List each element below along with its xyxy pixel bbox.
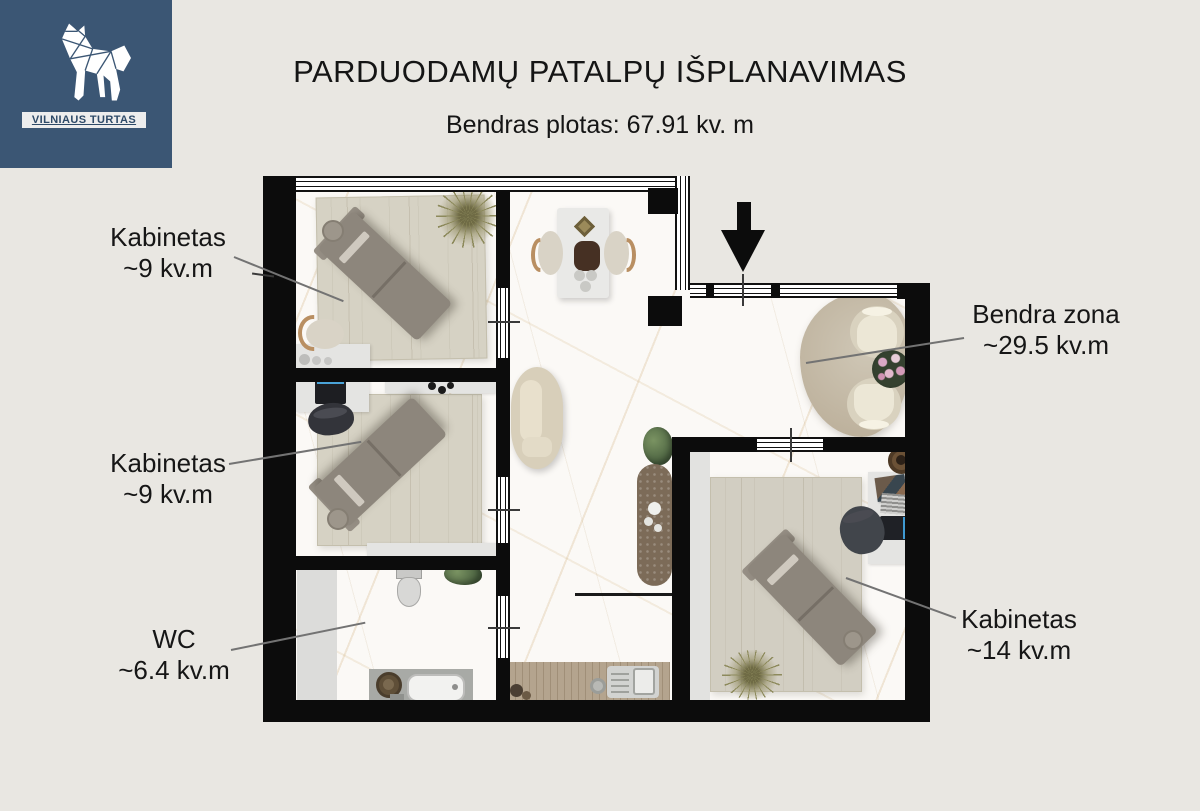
stool [322,220,344,242]
wall-interior [496,358,510,477]
sink-basin [633,668,655,695]
door-tick [790,428,792,462]
plant-icon [722,650,782,700]
chair-seat [604,231,629,275]
table-tray [574,241,600,271]
plant-icon [436,184,500,248]
room-area: ~29.5 kv.m [941,330,1151,361]
wall-interior [672,437,690,700]
wall-interior [496,190,510,288]
room-name: Kabinetas [63,448,273,479]
table-cup [580,281,591,292]
plant-icon [643,427,673,465]
pebble-decor [648,502,661,515]
wall-interior [296,368,496,382]
company-logo: VILNIAUS TURTAS [0,0,172,168]
door [496,288,510,358]
drying-rack [611,671,629,693]
door-tick [742,274,744,306]
pebble-decor [654,524,662,532]
room-label-kabinetas-large: Kabinetas ~14 kv.m [914,604,1124,666]
floor-plan-page: { "header": { "title": "PARDUODAMŲ PATAL… [0,0,1200,811]
decor-dot [428,382,436,390]
sink-bowl [312,356,321,365]
wall-post [706,283,714,298]
room-name: Bendra zona [941,299,1151,330]
wall-post [771,283,780,298]
toilet-bowl [397,577,421,607]
room-label-bendra-zona: Bendra zona ~29.5 kv.m [941,299,1151,361]
wall-bottom [263,700,930,722]
room-area: ~14 kv.m [914,635,1124,666]
page-subtitle: Bendras plotas: 67.91 kv. m [0,111,1200,140]
wall-interior [690,437,757,452]
counter [367,543,496,556]
room-area: ~9 kv.m [63,253,273,284]
entrance-window-wall [690,283,905,298]
plate [522,691,531,700]
round-sink-drain [383,679,394,690]
stool [327,508,349,530]
lounge-chair-foot [522,437,552,457]
room-label-kabinetas-top: Kabinetas ~9 kv.m [63,222,273,284]
page-title: PARDUODAMŲ PATALPŲ IŠPLANAVIMAS [0,54,1200,90]
partition-line [575,593,672,596]
wall-interior [823,437,905,452]
door-tick [488,321,520,323]
room-name: Kabinetas [63,222,273,253]
wolf-icon [36,14,136,112]
chair-seat [538,231,563,275]
wardrobe-strip [690,452,710,700]
room-name: WC [69,624,279,655]
room-area: ~9 kv.m [63,479,273,510]
decor-dot [447,382,454,389]
stool [843,630,863,650]
chair-seat [306,319,344,349]
bathtub-drain [452,684,458,690]
table-cup [574,270,585,281]
wall-interior [496,658,510,706]
window [296,176,680,192]
door-tick [488,509,520,511]
column [648,296,682,326]
wall-interior [296,556,496,570]
entrance-arrow-head-icon [721,230,765,272]
sink-bowl [324,357,332,365]
room-area: ~6.4 kv.m [69,655,279,686]
wall-corner [897,283,930,299]
lounge-chair-cushion [520,380,542,442]
room-label-wc: WC ~6.4 kv.m [69,624,279,686]
door-tick [488,627,520,629]
table-cup [586,270,597,281]
room-label-kabinetas-mid: Kabinetas ~9 kv.m [63,448,273,510]
column [648,188,678,214]
pebble-decor [644,517,653,526]
brand-name: VILNIAUS TURTAS [22,112,146,128]
room-name: Kabinetas [914,604,1124,635]
plate [590,678,606,694]
wall-interior [496,543,510,596]
sink-bowl [299,354,310,365]
decor-dot [438,386,446,394]
